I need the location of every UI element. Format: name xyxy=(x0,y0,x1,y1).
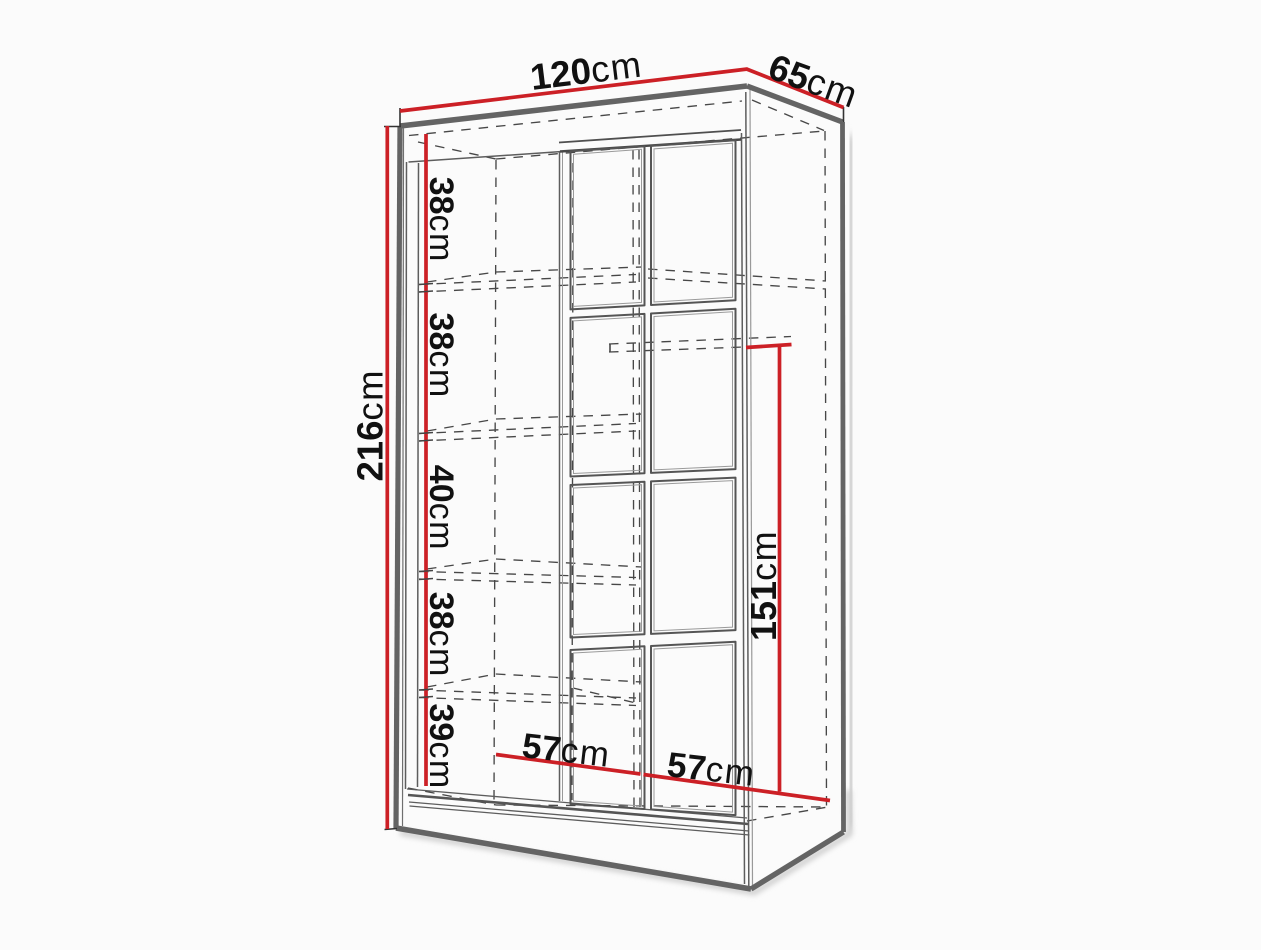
svg-text:38cm: 38cm xyxy=(422,313,460,399)
svg-text:40cm: 40cm xyxy=(422,465,460,551)
svg-text:151cm: 151cm xyxy=(743,530,784,641)
svg-text:39cm: 39cm xyxy=(422,704,460,790)
svg-text:216cm: 216cm xyxy=(350,369,391,482)
svg-text:38cm: 38cm xyxy=(422,592,460,678)
svg-text:38cm: 38cm xyxy=(422,177,460,263)
